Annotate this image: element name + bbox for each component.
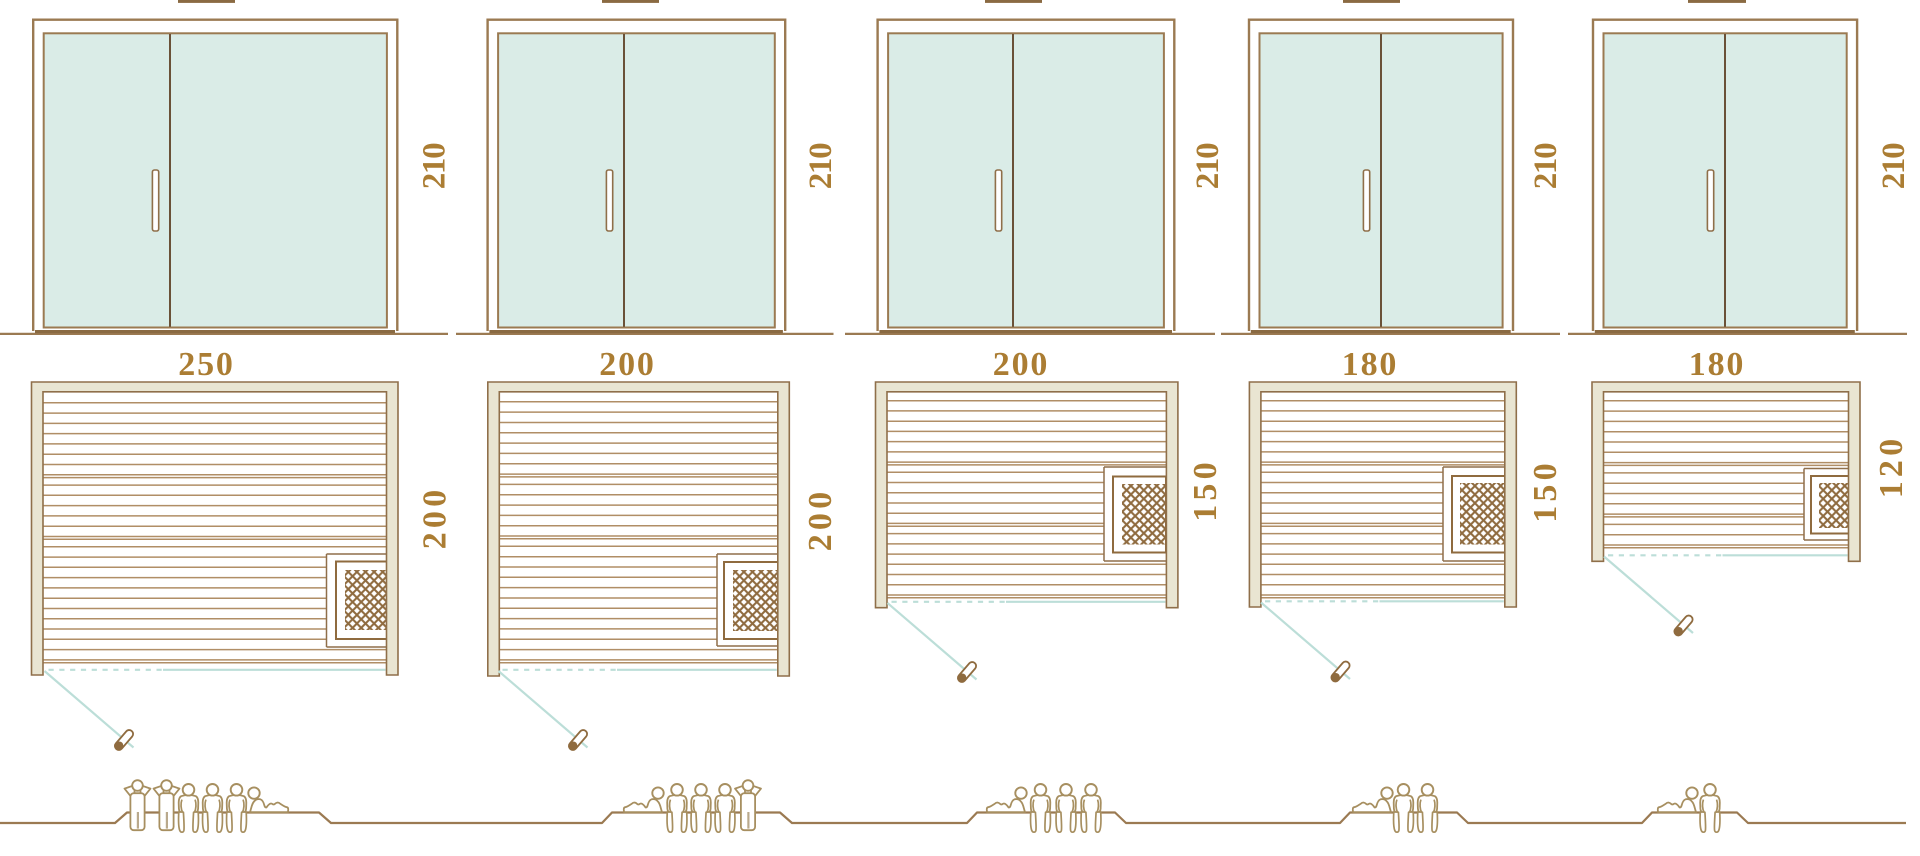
- svg-text:200: 200: [599, 346, 655, 383]
- svg-text:150: 150: [1527, 459, 1564, 523]
- svg-text:210: 210: [803, 143, 839, 189]
- svg-text:150: 150: [1187, 458, 1224, 522]
- svg-text:180: 180: [1342, 346, 1398, 383]
- svg-text:200: 200: [993, 346, 1049, 383]
- svg-text:250: 250: [178, 346, 234, 383]
- svg-text:180: 180: [1689, 346, 1745, 383]
- svg-text:200: 200: [417, 486, 454, 550]
- svg-text:210: 210: [1190, 143, 1226, 189]
- svg-text:210: 210: [1528, 143, 1564, 189]
- svg-text:120: 120: [1873, 435, 1910, 499]
- svg-text:210: 210: [417, 143, 453, 189]
- svg-text:200: 200: [802, 488, 839, 552]
- svg-text:210: 210: [1876, 143, 1912, 189]
